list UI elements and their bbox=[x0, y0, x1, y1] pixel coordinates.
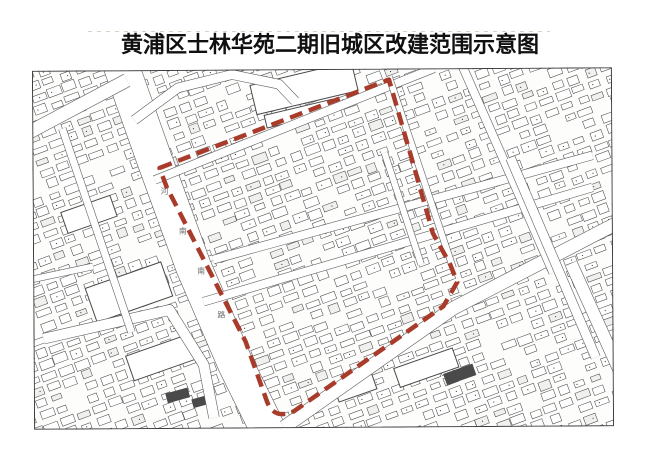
building bbox=[613, 246, 614, 258]
building bbox=[336, 428, 349, 430]
map-canvas: 河南南路 bbox=[32, 67, 614, 430]
page: 黄浦区士林华苑二期旧城区改建范围示意图 河南南路 bbox=[0, 0, 660, 467]
building bbox=[32, 317, 34, 325]
building bbox=[446, 427, 458, 430]
building bbox=[92, 67, 106, 68]
building bbox=[32, 404, 33, 414]
building bbox=[57, 67, 69, 68]
map-title: 黄浦区士林华苑二期旧城区改建范围示意图 bbox=[0, 33, 660, 57]
road-name-char: 路 bbox=[217, 310, 225, 320]
building bbox=[608, 428, 614, 429]
map-frame: 河南南路 bbox=[32, 67, 614, 430]
building bbox=[264, 429, 280, 430]
building bbox=[370, 428, 385, 430]
road-name-char: 南 bbox=[179, 226, 187, 236]
parcel-dot bbox=[559, 428, 561, 430]
building bbox=[127, 67, 143, 69]
building bbox=[480, 427, 493, 430]
building bbox=[32, 67, 33, 69]
road-name-char: 南 bbox=[197, 266, 205, 276]
building bbox=[613, 146, 614, 156]
building bbox=[538, 429, 552, 430]
